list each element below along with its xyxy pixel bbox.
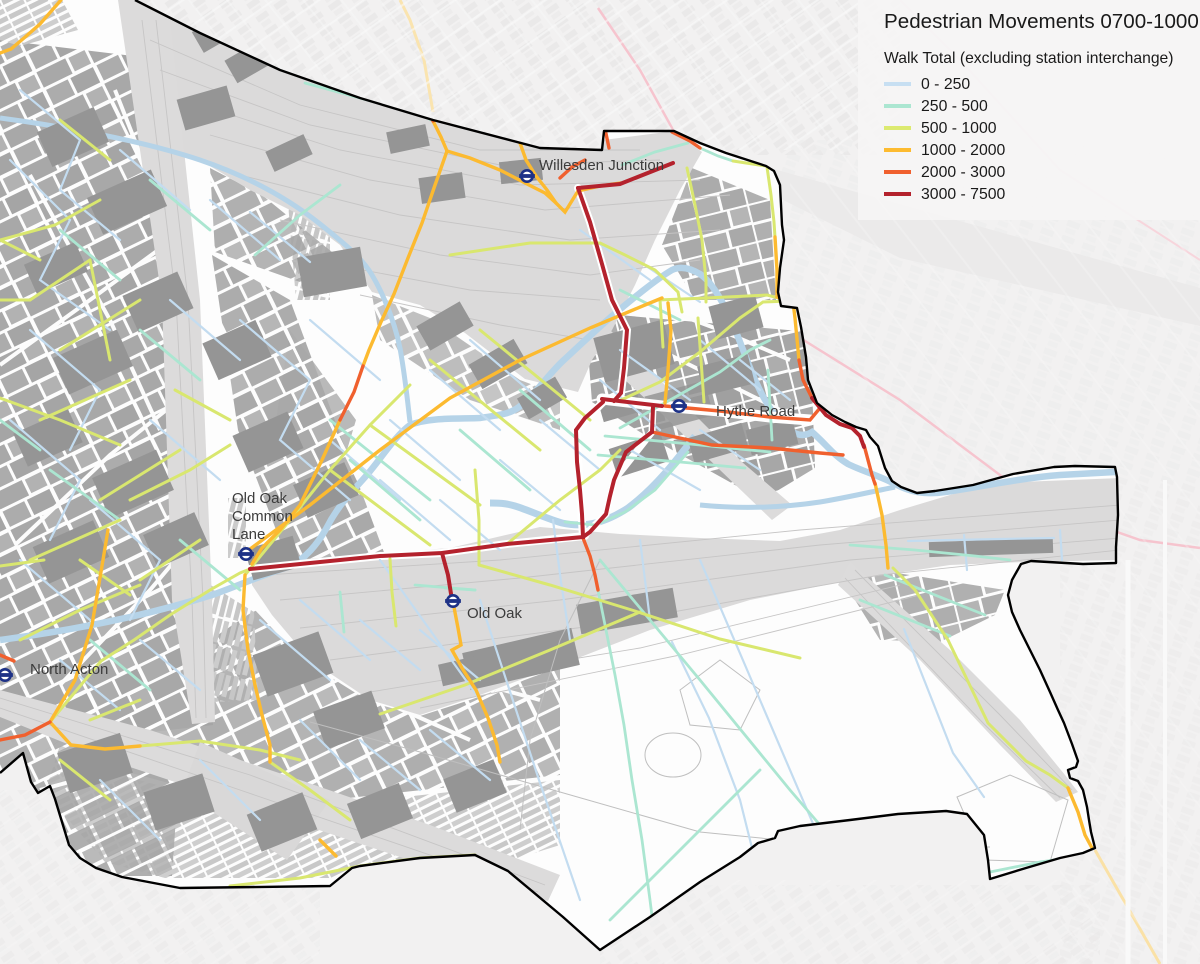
svg-text:Hythe Road: Hythe Road xyxy=(716,403,795,420)
svg-text:2000 - 3000: 2000 - 3000 xyxy=(921,164,1006,181)
svg-text:250 - 500: 250 - 500 xyxy=(921,98,988,115)
svg-text:Walk Total (excluding station: Walk Total (excluding station interchang… xyxy=(884,50,1174,67)
svg-text:Pedestrian Movements 0700-1000: Pedestrian Movements 0700-1000 xyxy=(884,10,1199,33)
svg-text:Lane: Lane xyxy=(232,526,265,543)
svg-text:Old Oak: Old Oak xyxy=(467,605,523,622)
svg-text:North Acton: North Acton xyxy=(30,661,108,678)
svg-text:1000 - 2000: 1000 - 2000 xyxy=(921,142,1006,159)
svg-text:Old Oak: Old Oak xyxy=(232,490,288,507)
svg-text:500 - 1000: 500 - 1000 xyxy=(921,120,997,137)
svg-text:3000 - 7500: 3000 - 7500 xyxy=(921,186,1006,203)
svg-text:0 - 250: 0 - 250 xyxy=(921,76,970,93)
svg-text:Willesden Junction: Willesden Junction xyxy=(539,157,664,174)
svg-text:Common: Common xyxy=(232,508,293,525)
